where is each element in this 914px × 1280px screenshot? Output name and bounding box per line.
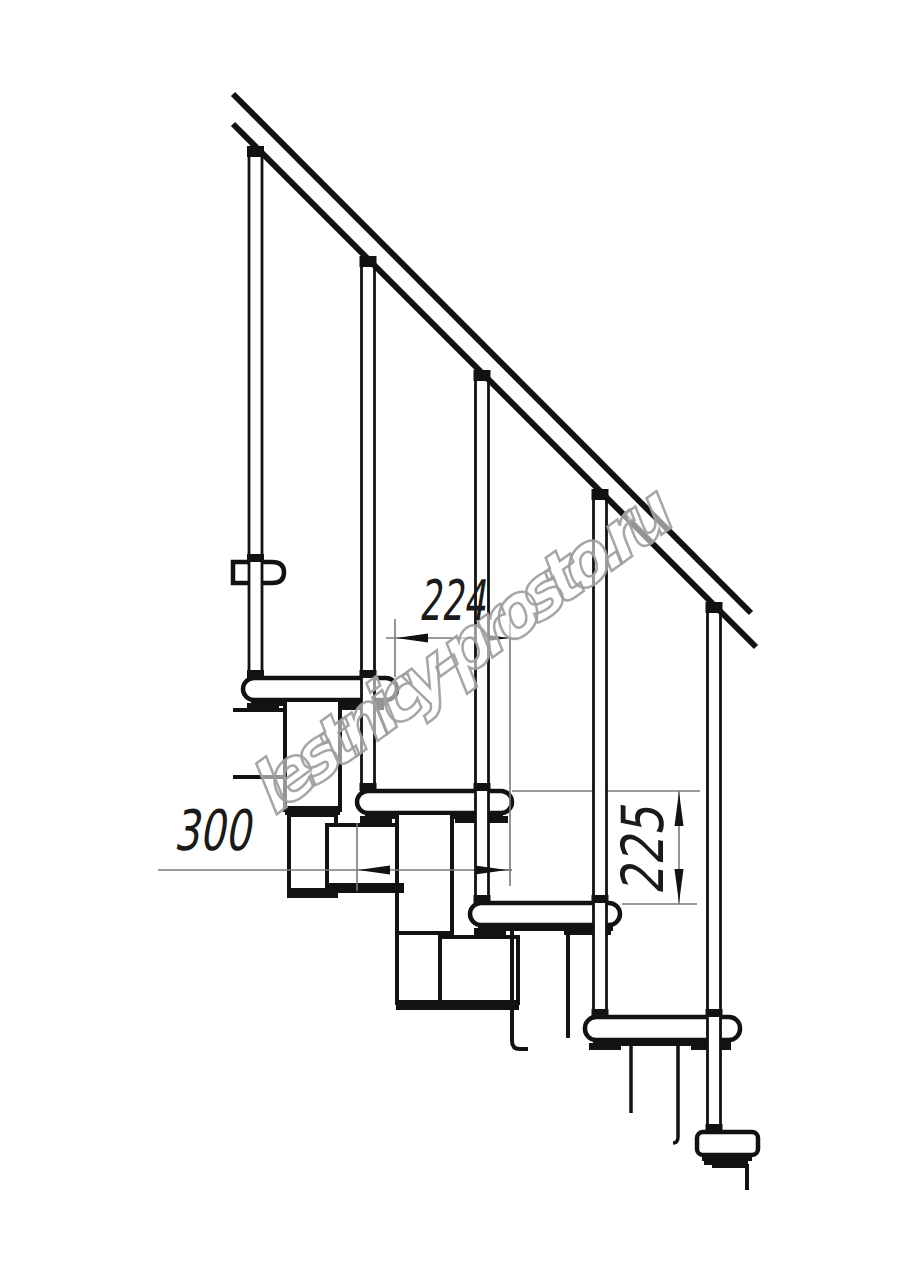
dimension-label-rise: 225	[613, 771, 673, 931]
baluster-1	[249, 155, 262, 678]
staircase-side-view-drawing: lestnicy-prosto.ru 224 300 225	[0, 0, 914, 1280]
tread-5-partial	[697, 1132, 758, 1155]
dimension-label-run: 224	[390, 571, 514, 631]
dimension-label-depth: 300	[140, 801, 284, 861]
handrail	[233, 94, 756, 647]
baluster-5	[708, 611, 721, 1132]
bottom-step-edge	[712, 1166, 747, 1190]
dimension-arrow-depth-right	[475, 866, 512, 875]
